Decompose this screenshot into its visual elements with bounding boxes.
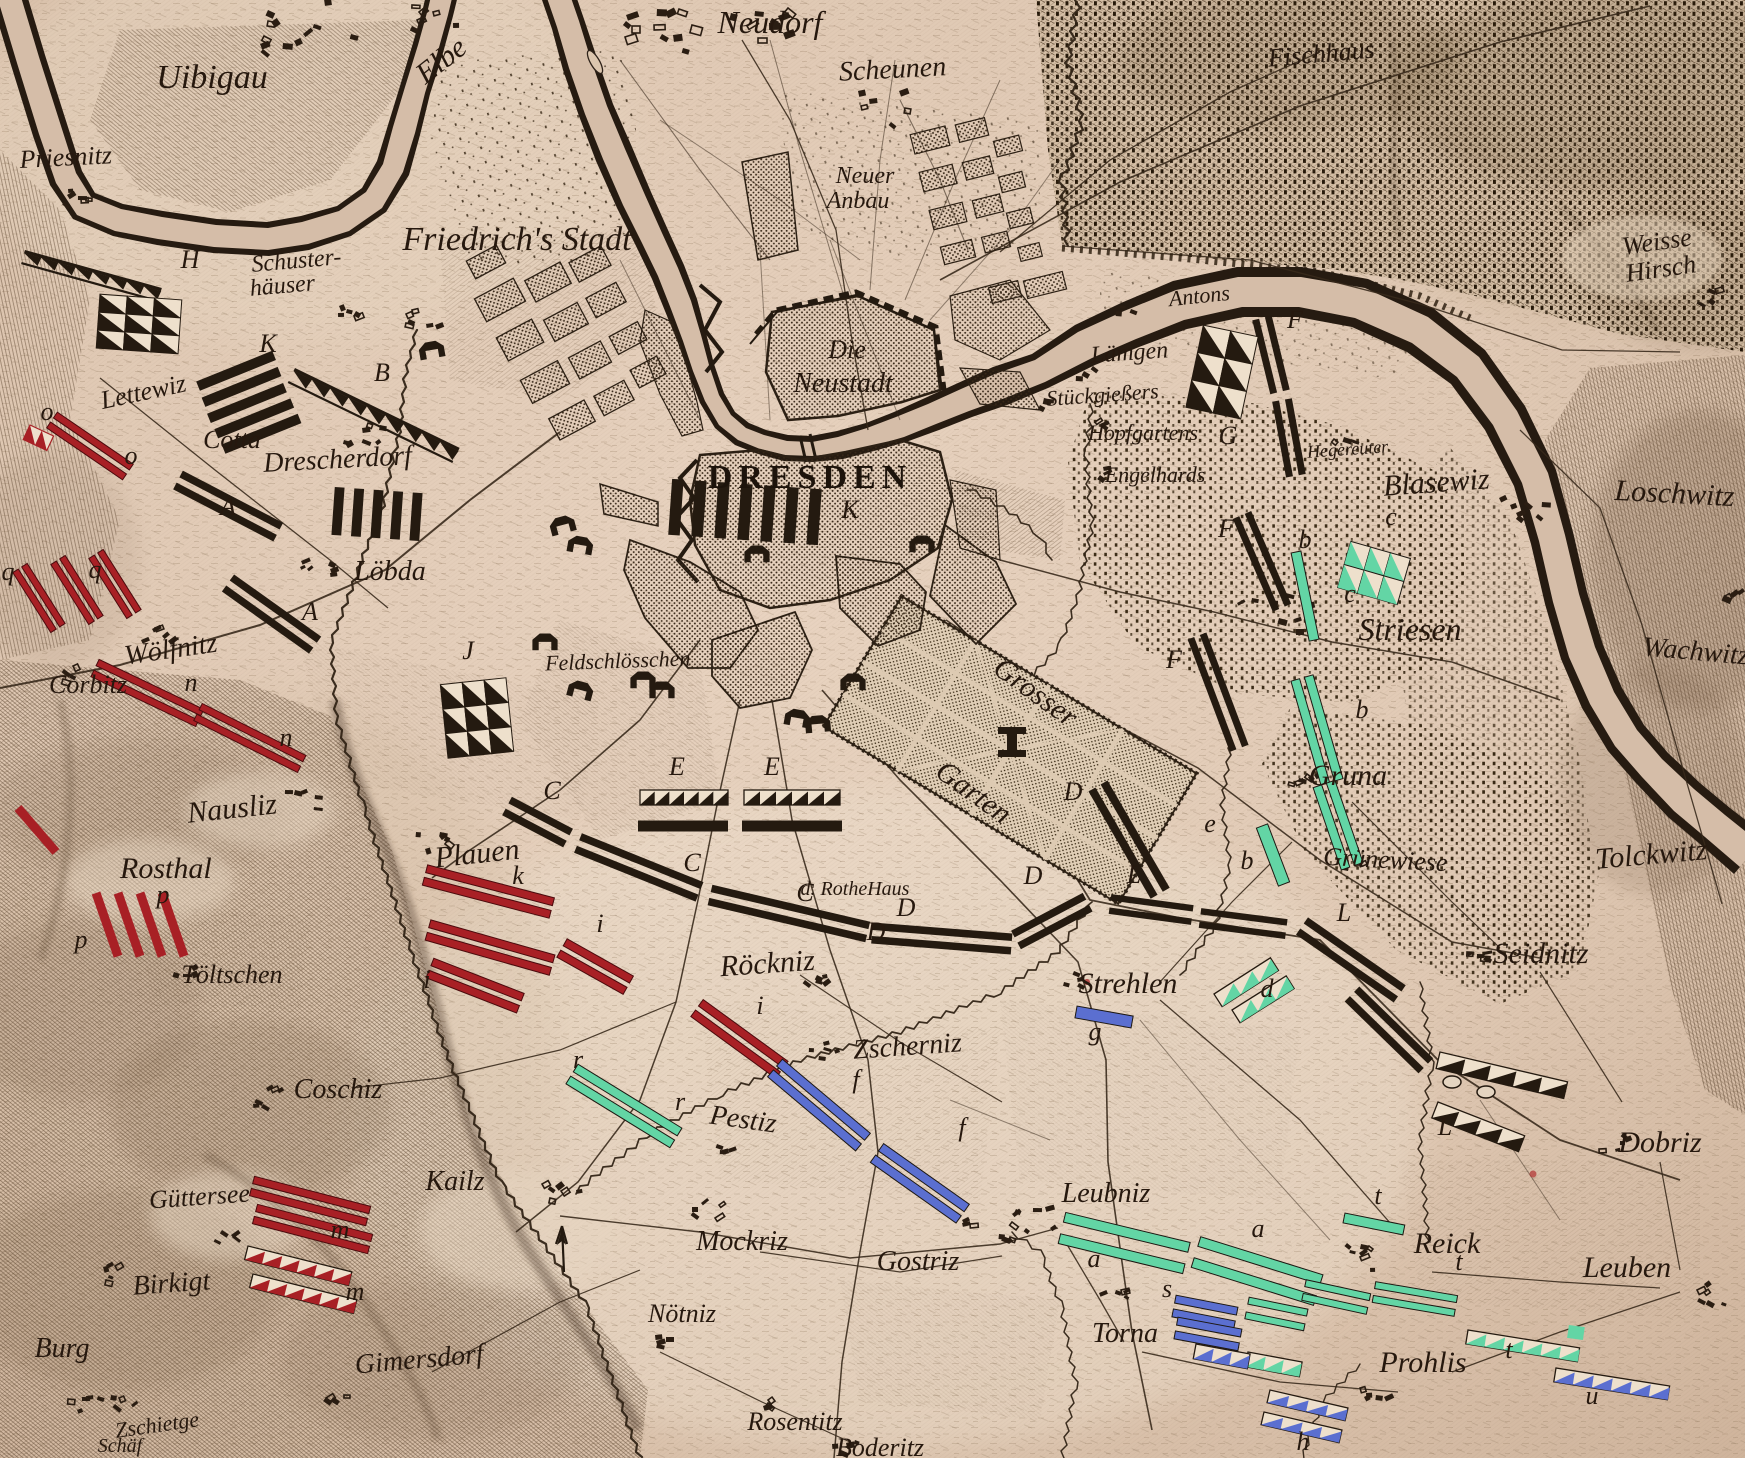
svg-text:Cotta: Cotta — [203, 425, 261, 454]
svg-text:Engelhards: Engelhards — [1104, 462, 1206, 487]
svg-text:L: L — [1336, 898, 1351, 927]
svg-text:Burg: Burg — [35, 1333, 90, 1364]
svg-text:Corbitz: Corbitz — [49, 670, 127, 699]
svg-text:n: n — [280, 723, 293, 752]
svg-text:L: L — [1126, 860, 1141, 889]
svg-text:F: F — [1217, 514, 1235, 543]
svg-text:Seidnitz: Seidnitz — [1494, 937, 1589, 970]
svg-text:K: K — [258, 329, 278, 358]
svg-text:h: h — [1297, 1427, 1310, 1456]
svg-text:Mockriz: Mockriz — [695, 1226, 788, 1257]
svg-text:Rosentitz: Rosentitz — [746, 1407, 842, 1436]
svg-text:t: t — [1505, 1335, 1513, 1364]
svg-text:c: c — [1385, 502, 1397, 531]
svg-text:Löbda: Löbda — [353, 556, 426, 587]
svg-text:Gostriz: Gostriz — [877, 1246, 960, 1277]
svg-text:i: i — [756, 991, 763, 1020]
svg-text:Neudorf: Neudorf — [717, 4, 827, 40]
svg-text:r: r — [573, 1045, 584, 1074]
svg-text:Uibigau: Uibigau — [156, 59, 267, 96]
svg-text:b: b — [1241, 846, 1254, 875]
svg-text:Nötniz: Nötniz — [647, 1299, 716, 1328]
svg-text:B: B — [374, 358, 390, 387]
svg-text:Hopfgartens: Hopfgartens — [1087, 420, 1198, 445]
svg-text:Birkigt: Birkigt — [132, 1265, 213, 1301]
svg-text:Striesen: Striesen — [1358, 611, 1461, 647]
svg-text:a: a — [1252, 1214, 1265, 1243]
svg-text:D: D — [1023, 861, 1043, 890]
svg-text:b: b — [1299, 525, 1312, 554]
svg-text:F: F — [1165, 645, 1183, 674]
svg-text:C: C — [796, 878, 814, 907]
svg-text:b: b — [1356, 695, 1369, 724]
svg-text:Röckniz: Röckniz — [718, 944, 816, 984]
svg-text:Anbau: Anbau — [825, 188, 890, 214]
svg-text:n: n — [185, 668, 198, 697]
svg-text:D: D — [1063, 777, 1083, 806]
svg-text:C: C — [683, 848, 701, 877]
svg-text:u: u — [1586, 1381, 1599, 1410]
svg-text:Feldschlösschen: Feldschlösschen — [544, 645, 691, 675]
svg-text:t: t — [1374, 1181, 1382, 1210]
svg-text:m: m — [331, 1215, 350, 1244]
svg-text:Leuben: Leuben — [1582, 1251, 1671, 1284]
svg-text:d: d — [1261, 974, 1275, 1003]
svg-text:Reick: Reick — [1413, 1227, 1481, 1260]
svg-text:E: E — [763, 752, 780, 781]
svg-text:A: A — [300, 597, 318, 626]
svg-text:Loschwitz: Loschwitz — [1613, 474, 1736, 513]
svg-text:Prohlis: Prohlis — [1378, 1346, 1466, 1379]
svg-text:q: q — [2, 557, 15, 586]
svg-text:L: L — [1437, 1112, 1452, 1141]
svg-text:Strehlen: Strehlen — [1079, 967, 1178, 1000]
svg-text:o: o — [41, 397, 54, 426]
svg-text:F: F — [1286, 305, 1304, 334]
svg-text:Friedrich's Stadt: Friedrich's Stadt — [401, 221, 633, 258]
svg-text:Schäf: Schäf — [98, 1435, 145, 1457]
svg-text:Coschiz: Coschiz — [294, 1074, 383, 1105]
svg-text:K: K — [840, 495, 860, 524]
svg-text:t: t — [1455, 1247, 1463, 1276]
svg-text:Neustadt: Neustadt — [792, 368, 894, 399]
svg-text:e: e — [1204, 809, 1216, 838]
svg-text:Neuer: Neuer — [835, 163, 895, 189]
svg-text:Lämgen: Lämgen — [1089, 337, 1169, 368]
svg-text:Scheunen: Scheunen — [838, 51, 947, 88]
svg-text:a: a — [1088, 1244, 1101, 1273]
svg-text:r: r — [675, 1087, 686, 1116]
svg-text:Priesnitz: Priesnitz — [18, 140, 113, 174]
svg-text:q: q — [89, 555, 102, 584]
svg-text:g: g — [1089, 1017, 1102, 1046]
svg-text:E: E — [668, 752, 685, 781]
svg-text:D: D — [866, 917, 886, 946]
svg-text:J: J — [462, 636, 475, 665]
svg-text:Dobriz: Dobriz — [1617, 1126, 1702, 1159]
svg-text:i: i — [423, 965, 430, 994]
svg-text:H: H — [180, 245, 201, 274]
svg-text:s: s — [1162, 1274, 1172, 1303]
svg-text:k: k — [512, 861, 524, 890]
svg-text:Gruna: Gruna — [1309, 759, 1387, 792]
svg-text:o: o — [125, 441, 138, 470]
svg-text:DRESDEN: DRESDEN — [708, 459, 912, 496]
svg-text:Die: Die — [827, 335, 866, 364]
svg-text:p: p — [155, 880, 170, 909]
svg-text:d. RotheHaus: d. RotheHaus — [801, 878, 910, 900]
svg-text:Torna: Torna — [1092, 1318, 1158, 1349]
svg-text:m: m — [346, 1277, 365, 1306]
svg-text:C: C — [543, 776, 561, 805]
svg-text:Leubniz: Leubniz — [1061, 1178, 1151, 1209]
svg-text:Boderitz: Boderitz — [836, 1433, 924, 1458]
svg-text:c: c — [1344, 579, 1356, 608]
svg-text:D: D — [896, 893, 916, 922]
svg-text:G: G — [1219, 421, 1238, 450]
svg-text:A: A — [218, 492, 236, 521]
svg-text:Kailz: Kailz — [424, 1166, 484, 1197]
svg-text:Töltschen: Töltschen — [181, 960, 282, 989]
svg-text:p: p — [73, 925, 88, 954]
svg-text:i: i — [596, 909, 603, 938]
